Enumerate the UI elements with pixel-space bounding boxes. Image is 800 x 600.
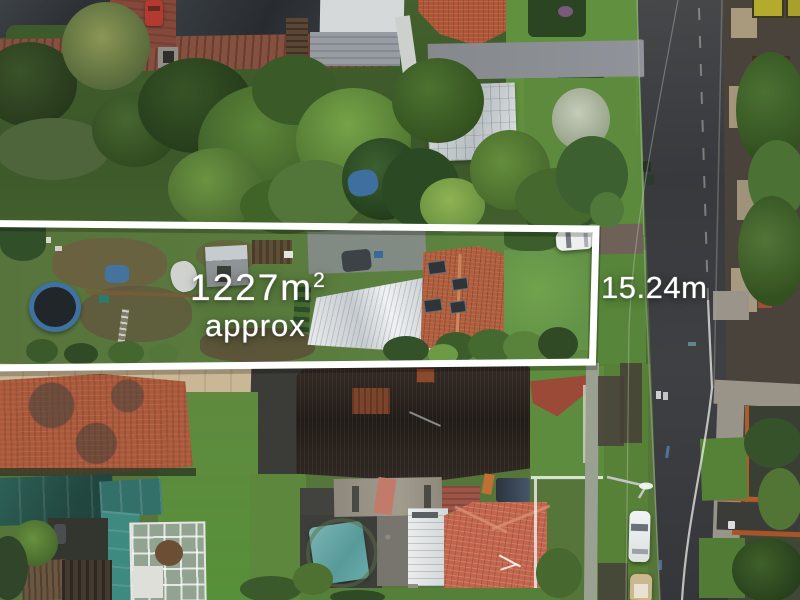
garden-hedge: [528, 0, 586, 37]
white-car-rear-window: [632, 549, 648, 554]
road-marking: [663, 392, 668, 400]
verge-dark-patch: [620, 363, 642, 443]
clutter: [99, 295, 109, 303]
bin: [643, 161, 651, 172]
rusty-shed: [21, 559, 66, 600]
carport-slot: [424, 485, 431, 510]
yellow-structure: [786, 0, 800, 18]
mailbox: [728, 521, 735, 529]
timber-lattice: [286, 18, 308, 60]
tree: [536, 548, 582, 598]
hedge: [428, 344, 458, 365]
roof-window: [427, 260, 447, 275]
aerial-property-photo: 1227m2 approx 15.24m: [0, 0, 800, 600]
hedge: [383, 336, 429, 364]
bin: [646, 175, 654, 185]
red-car: [145, 0, 163, 26]
grey-roof: [310, 32, 400, 66]
grass-verge-east: [700, 437, 748, 501]
tree: [293, 563, 333, 595]
carport-slot: [352, 486, 359, 512]
clutter: [284, 251, 293, 258]
hedge: [148, 344, 178, 364]
flowering-shrub: [558, 6, 573, 17]
tree: [330, 590, 385, 600]
greenhouse-plant: [155, 540, 183, 566]
hedge: [64, 343, 98, 365]
area-superscript: 2: [313, 269, 325, 292]
hedge: [0, 227, 46, 261]
footpath-south: [584, 363, 599, 600]
white-roof-section: [408, 508, 448, 586]
roof-vent: [412, 512, 438, 518]
verge-dark-patch: [598, 563, 628, 600]
white-car-windshield: [565, 232, 571, 248]
footpath-band-east: [713, 380, 800, 409]
road-marking: [688, 342, 696, 346]
hedge: [538, 327, 578, 361]
timber-deck: [62, 560, 112, 600]
concrete-pad: [713, 291, 749, 320]
area-value: 1227m: [190, 267, 313, 308]
roof-window: [449, 300, 467, 314]
dark-car: [341, 249, 372, 273]
tree: [744, 418, 800, 468]
red-car-windshield: [148, 6, 160, 11]
tree: [738, 196, 800, 306]
bush: [590, 192, 624, 228]
hedge: [504, 229, 558, 251]
tree: [732, 538, 800, 600]
trampoline: [29, 282, 81, 332]
blue-tarp-small: [105, 265, 129, 283]
roof-window: [451, 277, 469, 291]
beige-car-roof: [634, 584, 648, 598]
driveway-crossing-property: [597, 224, 644, 255]
area-qualifier: approx: [205, 310, 325, 341]
road-marking: [659, 560, 662, 570]
tree: [62, 2, 150, 90]
yellow-structure: [752, 0, 784, 18]
hedge: [108, 341, 144, 365]
tree: [392, 58, 484, 143]
chimney: [416, 368, 435, 383]
frontage-label: 15.24m: [601, 272, 707, 303]
terracotta-roof-sw: [0, 372, 193, 477]
greenhouse-panel: [133, 566, 163, 598]
road-marking: [656, 391, 661, 399]
roof-repair-patch: [352, 388, 390, 414]
roof-window: [423, 298, 443, 313]
tree: [758, 468, 800, 530]
trailer: [496, 478, 530, 502]
hedge: [26, 339, 58, 363]
nature-strip-mid: [596, 250, 646, 370]
white-car-parked: [628, 511, 650, 563]
area-label: 1227m2 approx: [190, 269, 325, 341]
clutter: [374, 251, 383, 258]
salmon-roof-house: [444, 502, 547, 600]
white-car-windshield: [631, 524, 648, 531]
clutter: [55, 246, 62, 251]
